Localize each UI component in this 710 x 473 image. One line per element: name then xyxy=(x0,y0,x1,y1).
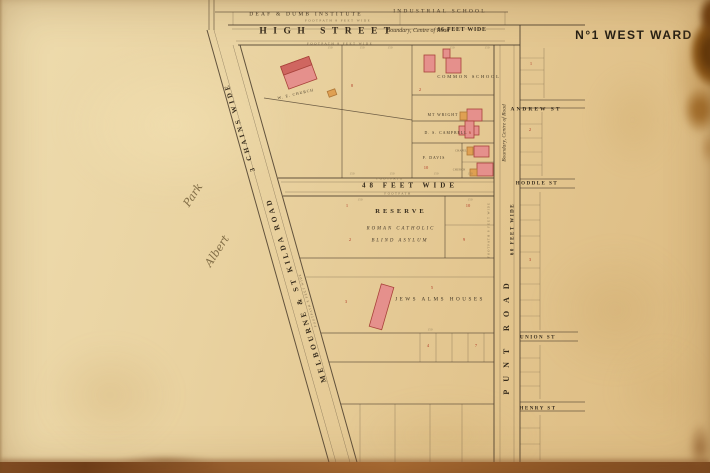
lot-number: 8 xyxy=(351,84,353,89)
dimension-mark: 150 xyxy=(433,172,438,175)
lot-number: 4 xyxy=(427,344,429,349)
dimension-mark: 150 xyxy=(327,46,332,49)
dimension-mark: 150 xyxy=(467,198,472,201)
lot-number: 6 xyxy=(469,131,471,136)
lot-number: 2 xyxy=(349,238,351,243)
lot-number: 3 xyxy=(529,258,531,263)
lot-number: 2 xyxy=(529,128,531,133)
lot-number: 10 xyxy=(424,166,429,171)
lot-number: 7 xyxy=(475,344,477,349)
lot-number: 9 xyxy=(463,238,465,243)
dimension-mark: 150 xyxy=(387,46,392,49)
lot-number: 2 xyxy=(419,88,421,93)
dimension-mark: 150 xyxy=(357,198,362,201)
dimension-mark: 150 xyxy=(349,172,354,175)
lot-number: 1 xyxy=(346,204,348,209)
lot-number: 3 xyxy=(345,300,347,305)
lot-number: 5 xyxy=(431,286,433,291)
dimension-mark: 150 xyxy=(467,172,472,175)
dimension-mark: 150 xyxy=(359,46,364,49)
small-annotations: 8261011029534712315015015015015015015015… xyxy=(0,0,710,473)
lot-number: 1 xyxy=(530,62,532,67)
lot-number: 10 xyxy=(466,204,471,209)
dimension-mark: 150 xyxy=(449,46,454,49)
dimension-mark: 150 xyxy=(427,328,432,331)
historic-ward-map: N°1 WEST WARD DEAF & DUMB INSTITUTE INDU… xyxy=(0,0,710,473)
dimension-mark: 150 xyxy=(484,46,489,49)
dimension-mark: 150 xyxy=(389,172,394,175)
